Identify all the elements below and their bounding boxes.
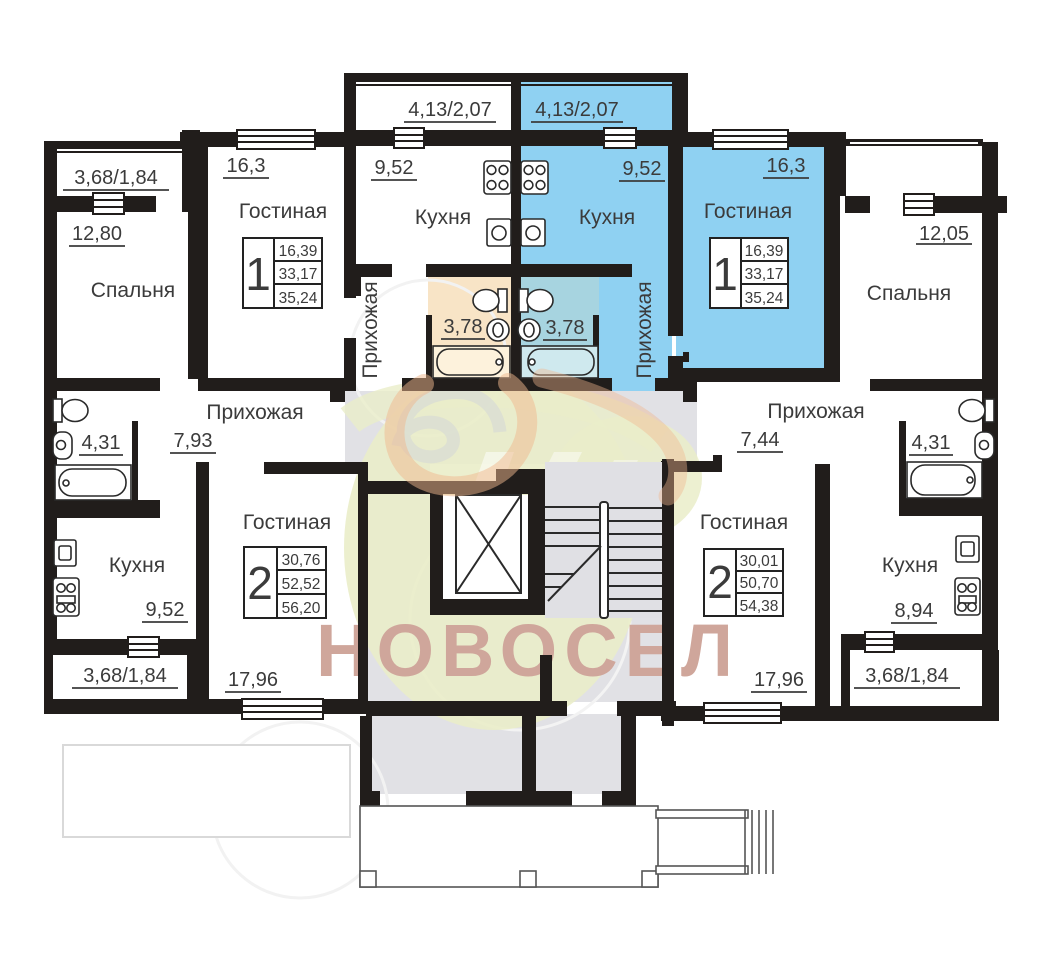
svg-text:3,78: 3,78 xyxy=(444,316,483,338)
svg-text:Кухня: Кухня xyxy=(109,554,165,577)
svg-text:Спальня: Спальня xyxy=(867,282,951,305)
svg-text:17,96: 17,96 xyxy=(228,669,278,691)
svg-text:35,24: 35,24 xyxy=(279,290,318,307)
svg-text:3,68/1,84: 3,68/1,84 xyxy=(83,665,166,687)
svg-text:7,44: 7,44 xyxy=(741,429,780,451)
svg-text:4,31: 4,31 xyxy=(912,432,951,454)
svg-text:33,17: 33,17 xyxy=(279,266,318,283)
svg-text:Гостиная: Гостиная xyxy=(704,200,792,223)
svg-text:Гостиная: Гостиная xyxy=(239,200,327,223)
svg-text:12,80: 12,80 xyxy=(72,223,122,245)
svg-text:30,01: 30,01 xyxy=(740,553,779,570)
svg-text:33,17: 33,17 xyxy=(745,266,784,283)
svg-text:4,13/2,07: 4,13/2,07 xyxy=(535,99,618,121)
svg-text:9,52: 9,52 xyxy=(375,157,414,179)
svg-text:52,52: 52,52 xyxy=(282,576,321,593)
svg-text:2: 2 xyxy=(247,557,273,609)
svg-text:Прихожая: Прихожая xyxy=(359,281,382,378)
svg-text:Гостиная: Гостиная xyxy=(700,511,788,534)
svg-text:Прихожая: Прихожая xyxy=(633,281,656,378)
svg-text:16,39: 16,39 xyxy=(745,243,784,260)
svg-text:1: 1 xyxy=(245,248,271,300)
svg-text:54,38: 54,38 xyxy=(740,598,779,615)
svg-text:16,3: 16,3 xyxy=(227,155,266,177)
svg-text:30,76: 30,76 xyxy=(282,552,321,569)
svg-text:Кухня: Кухня xyxy=(882,554,938,577)
svg-text:1: 1 xyxy=(712,248,738,300)
svg-text:3,78: 3,78 xyxy=(546,317,585,339)
svg-text:35,24: 35,24 xyxy=(745,290,784,307)
svg-text:Кухня: Кухня xyxy=(415,206,471,229)
svg-text:3,68/1,84: 3,68/1,84 xyxy=(865,665,948,687)
svg-text:16,3: 16,3 xyxy=(767,155,806,177)
svg-text:17,96: 17,96 xyxy=(754,669,804,691)
svg-text:Прихожая: Прихожая xyxy=(206,401,303,424)
svg-text:7,93: 7,93 xyxy=(174,430,213,452)
svg-text:Гостиная: Гостиная xyxy=(243,511,331,534)
svg-text:9,52: 9,52 xyxy=(623,158,662,180)
svg-text:НОВОСЕЛ: НОВОСЕЛ xyxy=(316,609,740,692)
svg-text:Кухня: Кухня xyxy=(579,206,635,229)
svg-text:56,20: 56,20 xyxy=(282,600,321,617)
svg-text:4,31: 4,31 xyxy=(82,432,121,454)
svg-text:50,70: 50,70 xyxy=(740,575,779,592)
svg-text:Спальня: Спальня xyxy=(91,279,175,302)
svg-text:4,13/2,07: 4,13/2,07 xyxy=(408,99,491,121)
svg-text:3,68/1,84: 3,68/1,84 xyxy=(74,167,157,189)
svg-text:Прихожая: Прихожая xyxy=(767,400,864,423)
svg-text:12,05: 12,05 xyxy=(919,223,969,245)
svg-text:8,94: 8,94 xyxy=(895,600,934,622)
svg-text:9,52: 9,52 xyxy=(146,599,185,621)
svg-text:16,39: 16,39 xyxy=(279,243,318,260)
svg-text:2: 2 xyxy=(707,556,733,608)
